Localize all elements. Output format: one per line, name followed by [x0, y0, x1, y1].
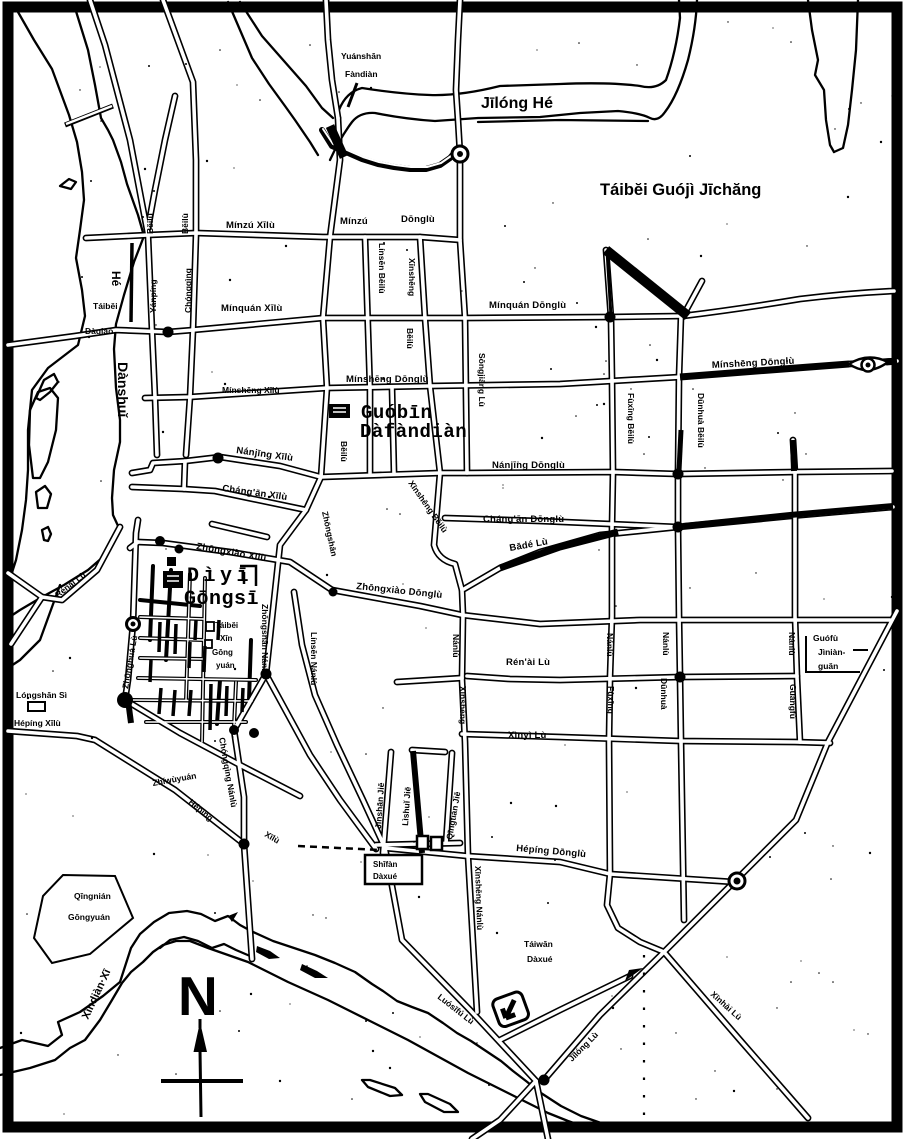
svg-text:Mínzú Xīlù: Mínzú Xīlù: [226, 220, 275, 231]
svg-text:Yánpíng: Yánpíng: [148, 279, 158, 313]
svg-text:Dàqiáo: Dàqiáo: [85, 326, 113, 336]
svg-text:Shīfàn: Shīfàn: [373, 860, 398, 869]
svg-text:Dàxué: Dàxué: [527, 954, 553, 964]
svg-text:Táiwān: Táiwān: [524, 939, 553, 949]
svg-text:Yuánshān: Yuánshān: [341, 51, 381, 61]
svg-text:Gōngsī: Gōngsī: [184, 588, 259, 611]
svg-text:Táibĕi: Táibĕi: [93, 301, 118, 311]
svg-text:Mínzú: Mínzú: [340, 216, 368, 227]
svg-text:Línsēn Nánlù: Línsēn Nánlù: [309, 632, 319, 685]
svg-text:Nánlù: Nánlù: [451, 634, 461, 658]
svg-text:Lóngshān Sì: Lóngshān Sì: [16, 690, 67, 700]
svg-text:Jīlóng Hé: Jīlóng Hé: [481, 95, 553, 112]
svg-text:Táibĕi Guójì Jīchăng: Táibĕi Guójì Jīchăng: [600, 181, 761, 199]
svg-text:Chóngqìng: Chóngqìng: [183, 268, 193, 313]
svg-text:Dànshuĭ: Dànshuĭ: [115, 362, 131, 418]
svg-text:Bĕilù: Bĕilù: [180, 213, 190, 234]
svg-text:Mínshēng Xīlù: Mínshēng Xīlù: [222, 385, 280, 395]
svg-text:Bĕilù: Bĕilù: [145, 213, 155, 234]
svg-text:Línsēn Bĕilù: Línsēn Bĕilù: [377, 243, 387, 294]
svg-text:Xīnshēng: Xīnshēng: [407, 258, 417, 296]
svg-text:Gōng: Gōng: [212, 648, 233, 657]
svg-text:N: N: [178, 965, 218, 1027]
svg-text:Nánjīng Dōnglù: Nánjīng Dōnglù: [492, 460, 565, 471]
svg-text:Bĕilù: Bĕilù: [405, 328, 415, 349]
svg-text:Hé: Hé: [109, 271, 123, 287]
svg-text:Gōngyuán: Gōngyuán: [68, 912, 110, 922]
svg-text:Fàndiàn: Fàndiàn: [345, 69, 378, 79]
svg-text:Cháng'ān Dōnglù: Cháng'ān Dōnglù: [483, 514, 564, 525]
svg-text:Fùxīng: Fùxīng: [606, 686, 616, 714]
svg-text:Dàfàndiàn: Dàfàndiàn: [360, 421, 467, 443]
svg-text:Nánlù: Nánlù: [661, 632, 671, 656]
svg-text:Sōngjiāng Lù: Sōngjiāng Lù: [477, 353, 487, 407]
svg-text:Mínshēng Dōnglù: Mínshēng Dōnglù: [346, 374, 429, 385]
svg-text:Guófù: Guófù: [813, 633, 838, 643]
svg-text:yuán: yuán: [216, 661, 235, 670]
svg-text:Bĕilù: Bĕilù: [339, 441, 349, 462]
svg-text:Mínquán Xīlù: Mínquán Xīlù: [221, 303, 283, 314]
svg-text:Dàxué: Dàxué: [373, 872, 398, 881]
svg-text:Nánlù: Nánlù: [787, 632, 797, 656]
svg-text:Táibĕi: Táibĕi: [215, 621, 238, 630]
svg-text:Xīn: Xīn: [220, 634, 233, 643]
svg-text:Dūnhuà: Dūnhuà: [659, 678, 669, 710]
svg-text:Dūnhuà Bĕilù: Dūnhuà Bĕilù: [696, 393, 706, 448]
svg-text:Guāngfù: Guāngfù: [788, 684, 798, 719]
svg-text:Qīngnián: Qīngnián: [74, 891, 111, 901]
svg-text:Rén'ài Lù: Rén'ài Lù: [506, 657, 550, 668]
svg-text:Hépíng Xīlù: Hépíng Xīlù: [14, 718, 61, 728]
svg-text:Zhōngshān Nánlù: Zhōngshān Nánlù: [260, 604, 270, 676]
svg-text:Xìnyì Lù: Xìnyì Lù: [508, 730, 547, 741]
svg-text:Xīnshēng: Xīnshēng: [458, 686, 468, 724]
svg-text:guăn: guăn: [818, 661, 838, 671]
svg-text:Nánlù: Nánlù: [605, 633, 615, 657]
svg-text:Jìniàn-: Jìniàn-: [818, 647, 846, 657]
svg-text:Dōnglù: Dōnglù: [401, 214, 435, 225]
svg-text:Fùxīng Bĕilù: Fùxīng Bĕilù: [626, 393, 636, 444]
svg-text:Mínquán Dōnglù: Mínquán Dōnglù: [489, 300, 566, 311]
